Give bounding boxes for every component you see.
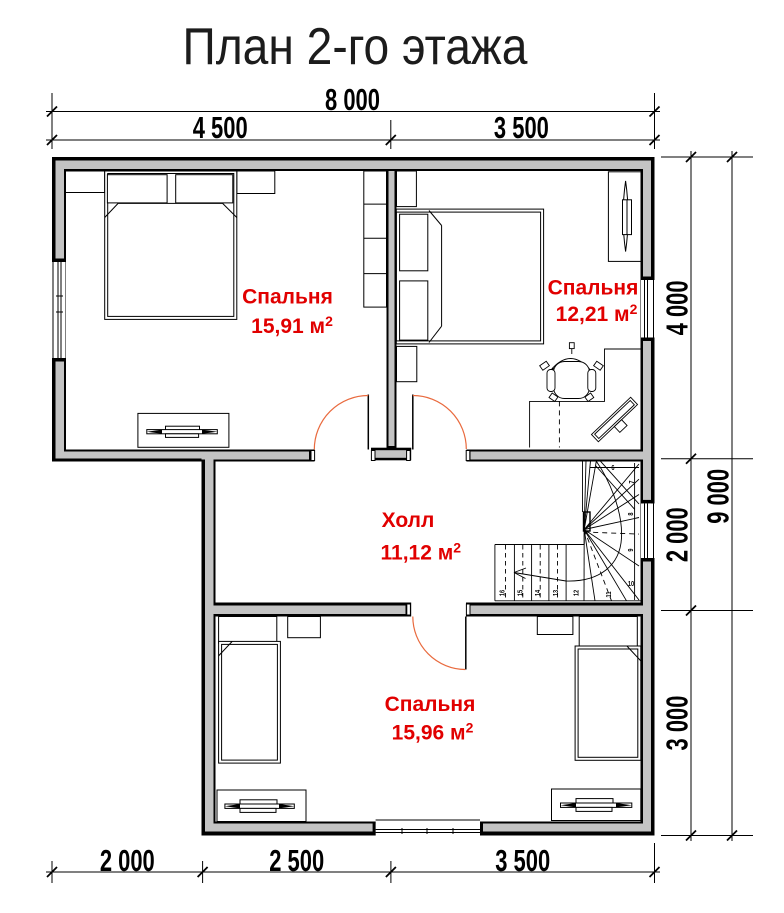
svg-text:13: 13: [552, 590, 560, 597]
svg-text:6: 6: [611, 464, 614, 472]
svg-text:Спальня: Спальня: [548, 277, 639, 300]
svg-text:Спальня: Спальня: [385, 693, 476, 716]
svg-text:2 000: 2 000: [660, 507, 694, 562]
svg-text:15,91 м2: 15,91 м2: [251, 313, 333, 338]
svg-text:3 000: 3 000: [660, 696, 694, 751]
svg-text:16: 16: [499, 590, 507, 597]
svg-text:11,12 м2: 11,12 м2: [381, 540, 462, 565]
svg-text:4 000: 4 000: [660, 280, 694, 335]
svg-text:11: 11: [605, 591, 613, 597]
svg-text:14: 14: [534, 590, 542, 597]
svg-text:12: 12: [573, 590, 581, 597]
svg-text:10: 10: [628, 580, 635, 588]
svg-text:3 500: 3 500: [494, 110, 549, 144]
svg-text:9 000: 9 000: [701, 469, 735, 524]
svg-text:12,21 м2: 12,21 м2: [556, 301, 638, 326]
svg-text:8: 8: [627, 512, 635, 515]
svg-text:15,96 м2: 15,96 м2: [392, 720, 474, 745]
svg-text:9: 9: [627, 548, 635, 551]
svg-text:15: 15: [517, 590, 525, 597]
svg-text:Холл: Холл: [382, 509, 435, 532]
svg-text:3 500: 3 500: [495, 843, 550, 877]
svg-text:4 500: 4 500: [193, 110, 248, 144]
svg-text:План 2-го этажа: План 2-го этажа: [183, 18, 528, 76]
svg-text:2 500: 2 500: [269, 843, 324, 877]
svg-text:Спальня: Спальня: [242, 286, 333, 309]
svg-text:8 000: 8 000: [325, 82, 380, 116]
svg-text:2 000: 2 000: [100, 843, 155, 877]
svg-text:7: 7: [628, 480, 636, 483]
